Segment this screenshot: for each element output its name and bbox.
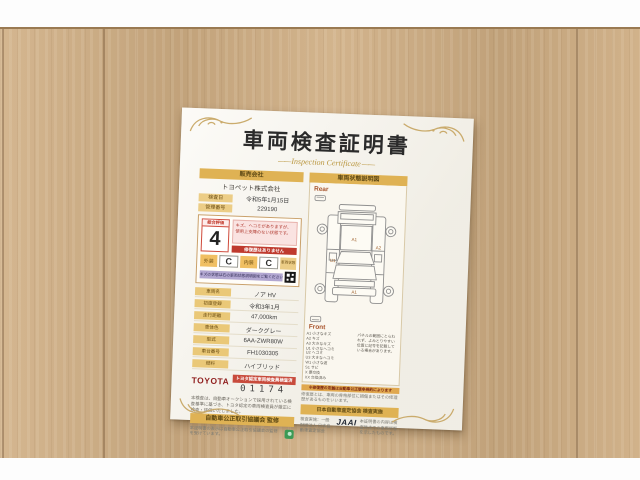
corner-flourish-icon — [189, 113, 254, 135]
car-damage-diagram: A1 U1 A2 A1 — [308, 202, 402, 317]
detail-value: ハイブリッド — [228, 360, 296, 372]
detail-label: 車体色 — [194, 323, 230, 332]
corner-flourish-icon — [390, 405, 455, 427]
overall-score-value: 4 — [202, 226, 229, 251]
jaai-logo: JAAI — [336, 418, 357, 428]
interior-label: 内装 — [240, 256, 257, 269]
detail-value: ノア HV — [231, 288, 299, 300]
damage-code: A1 — [351, 237, 357, 242]
exterior-label: 外装 — [200, 254, 217, 267]
condition-note-band: キズの状態は右の車両状態説明図をご覧ください — [200, 270, 283, 281]
jaai-note: 検査実施：一般財団法人 日本自動車査定協会 — [300, 416, 334, 434]
wood-seam — [103, 29, 105, 458]
detail-value: 47,000km — [230, 314, 298, 323]
toyota-logo: TOYOTA — [191, 375, 229, 386]
damage-legend: A1 小さなキズ A2 キズ A3 大きなキズ U1 小さなヘコミ U2 ヘコミ… — [305, 331, 399, 383]
corner-flourish-icon — [178, 397, 243, 419]
photo-of-certificate: 車両検査証明書 Inspection Certificate 販売会社 トヨペッ… — [0, 0, 640, 480]
detail-label: 型式 — [193, 335, 229, 344]
detail-value: ダークグレー — [229, 324, 297, 336]
fair-trade-council-logo-icon — [284, 430, 293, 439]
detail-value: 令和3年1月 — [230, 300, 298, 312]
wood-seam — [2, 29, 4, 458]
evaluation-comment: キズ、ヘコミがありますが、使用上支障のない状態です。 — [232, 220, 298, 246]
condition-diagram-panel: 車両状態説明図 Rear — [299, 172, 407, 444]
inspector-number: 01174 — [232, 384, 296, 396]
detail-label: 初度登録 — [194, 299, 230, 308]
certificate-paper: 車両検査証明書 Inspection Certificate 販売会社 トヨペッ… — [170, 108, 474, 431]
info-label: 検査日 — [199, 193, 233, 202]
repair-definition-note: 修復歴とは、車両の骨格部位に損傷またはその修理歴があるものをいいます。 — [301, 391, 399, 406]
detail-label: 燃料 — [192, 359, 228, 368]
detail-value: FH1030305 — [229, 349, 297, 358]
detail-label: 車台番号 — [193, 347, 229, 356]
qr-code — [284, 272, 295, 283]
legend-item: XX 交換済み — [305, 375, 353, 382]
repair-history-banner: 修復歴はありません — [232, 246, 297, 255]
diagram-box: Rear — [302, 182, 408, 385]
legend-note: パネルの範囲にとらわれず、よみとりやすい位置に記号を記載している場合があります。 — [356, 333, 399, 383]
wood-table: 車両検査証明書 Inspection Certificate 販売会社 トヨペッ… — [0, 27, 640, 460]
supervision-note: 本証明書の表示は自動車公正取引協議会の監修を受けています。 — [189, 425, 281, 440]
interior-grade: C — [259, 257, 278, 270]
detail-label: 車両名 — [195, 287, 231, 296]
overall-score-cell: 総合評価 4 — [201, 218, 230, 252]
info-value: 229190 — [232, 205, 302, 214]
letterbox-bottom — [0, 458, 640, 480]
wood-seam — [576, 29, 578, 458]
rear-label: Rear — [314, 186, 329, 194]
damage-code: A2 — [376, 245, 382, 250]
corner-flourish-icon — [401, 121, 466, 143]
exterior-grade: C — [219, 255, 238, 268]
damage-code: A1 — [351, 289, 357, 294]
info-label: 管理番号 — [198, 203, 232, 212]
car-rear-icon — [314, 194, 327, 202]
detail-label: 走行距離 — [194, 311, 230, 320]
condition-side-label: 車両状態 — [280, 257, 296, 270]
front-label: Front — [309, 324, 326, 332]
damage-code: U1 — [330, 258, 336, 263]
letterbox-top — [0, 0, 640, 27]
detail-value: 6AA-ZWR80W — [229, 337, 297, 346]
car-front-icon — [309, 315, 322, 323]
evaluation-box: 総合評価 4 キズ、ヘコミがありますが、使用上支障のない状態です。 修復歴はあり… — [195, 214, 302, 287]
